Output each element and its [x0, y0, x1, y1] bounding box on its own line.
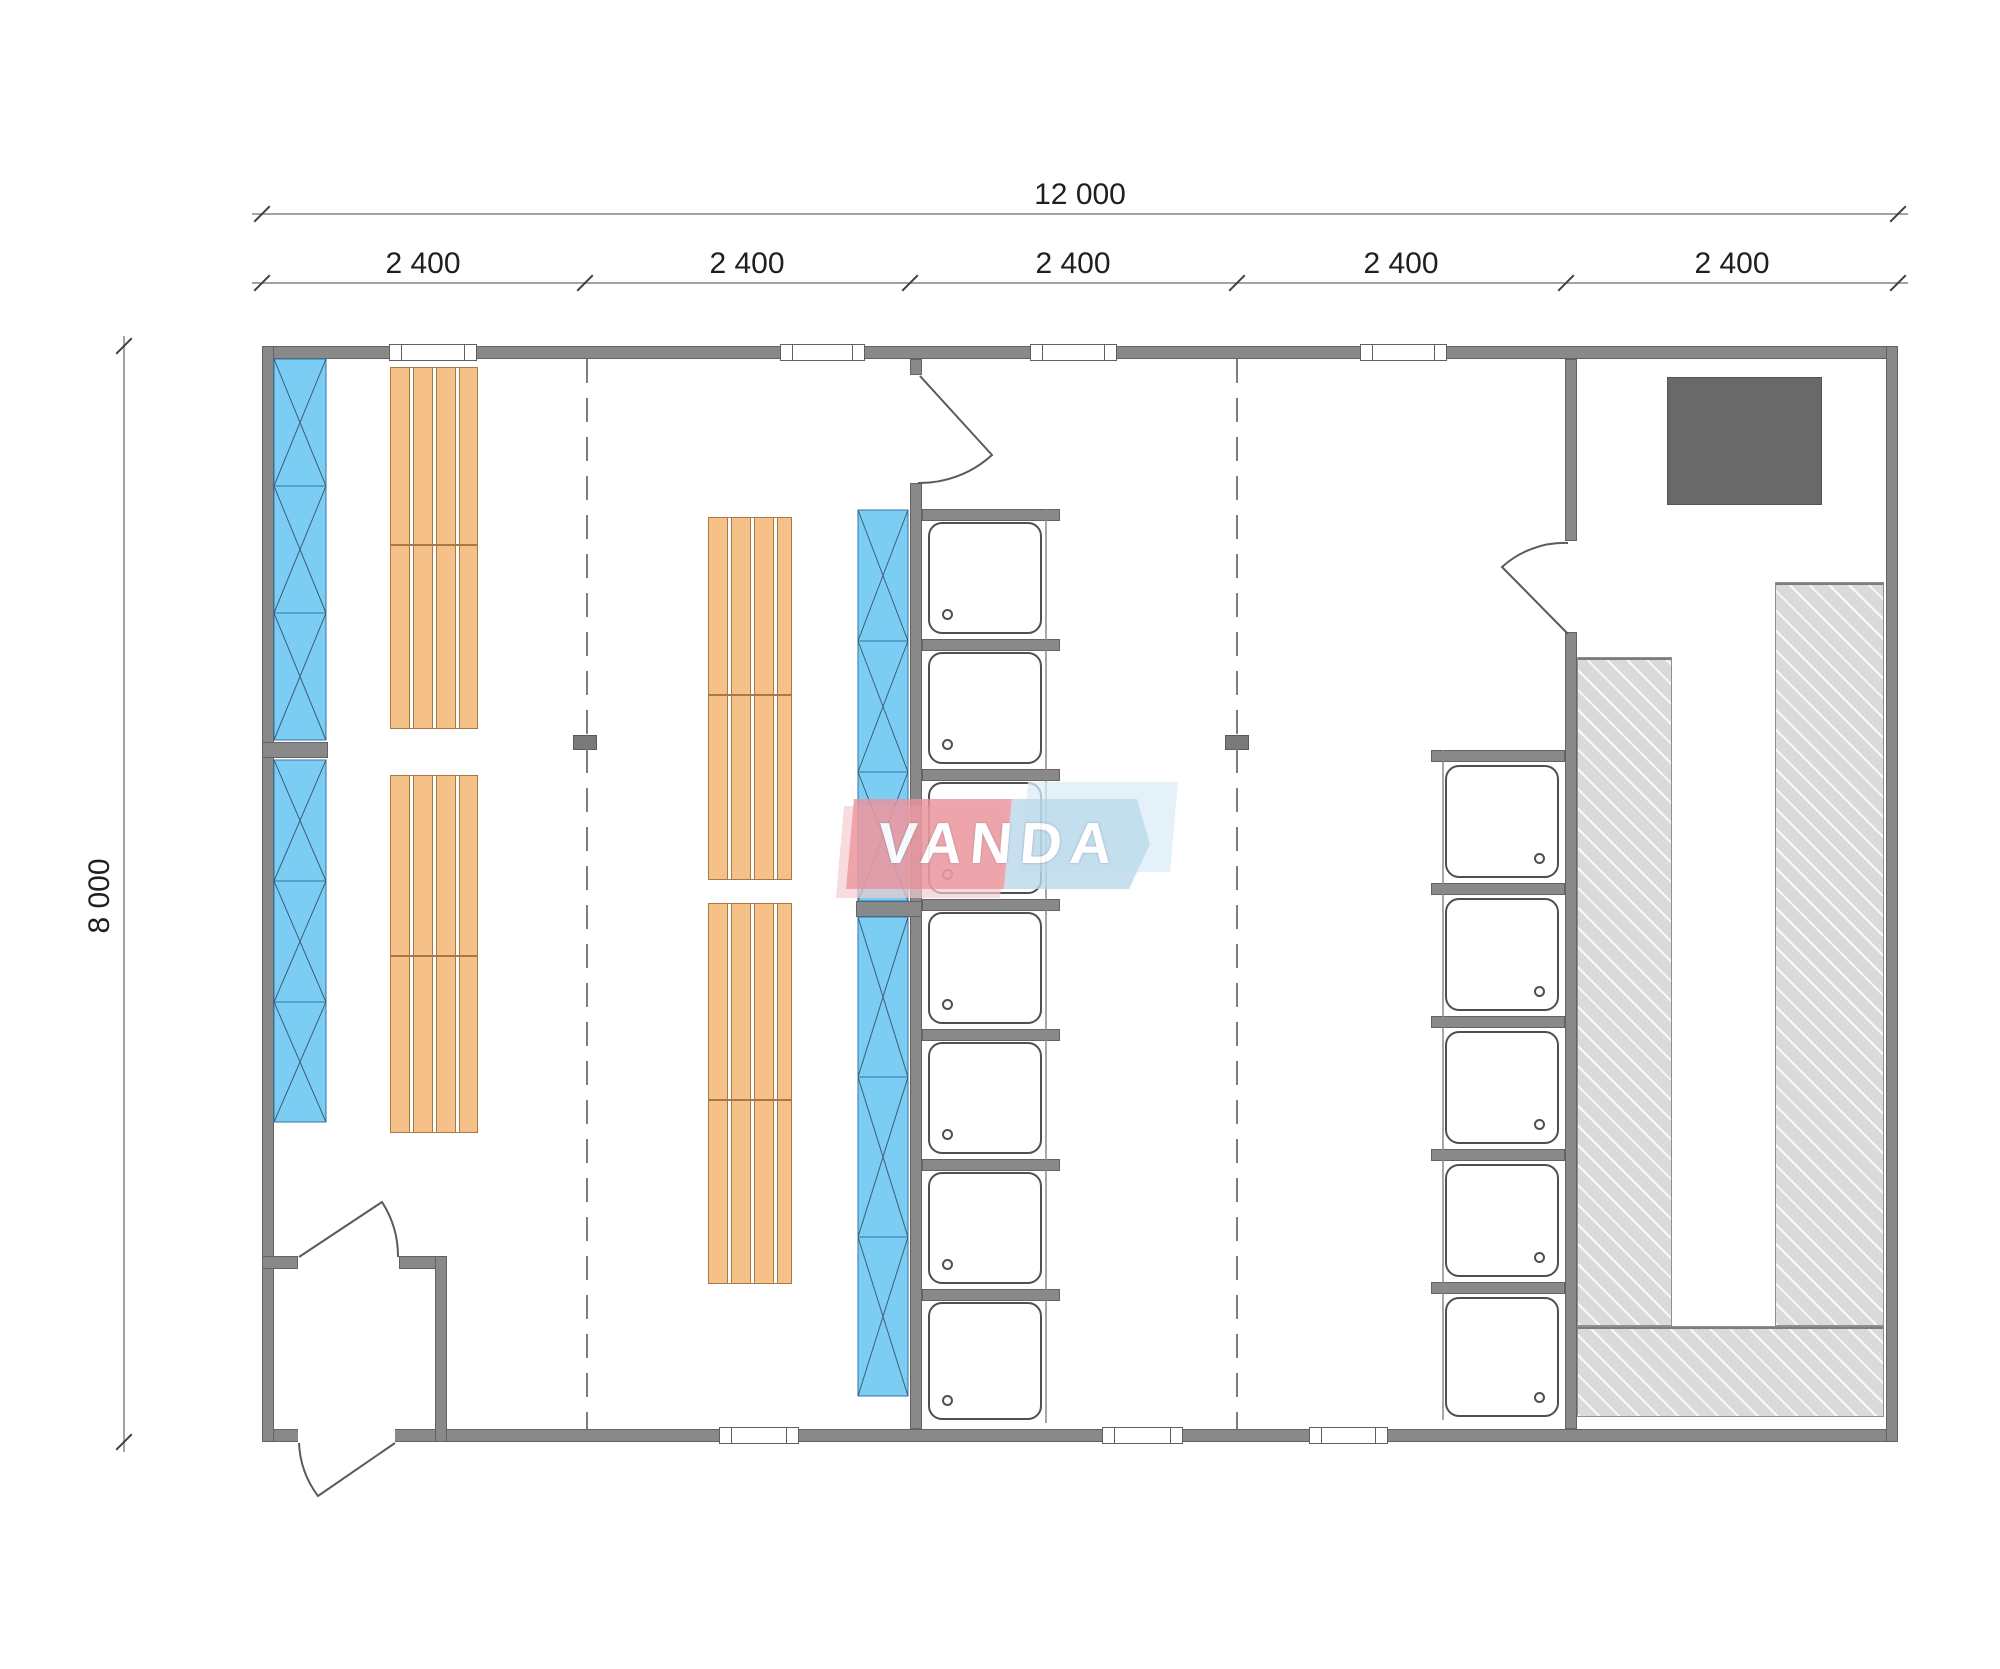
structural-post	[1225, 735, 1249, 750]
shower-tray	[1445, 1164, 1559, 1277]
shower-partition	[1431, 1282, 1565, 1294]
shower-tray	[1445, 898, 1559, 1011]
vanda-watermark: VANDA	[838, 788, 1178, 900]
structural-post	[573, 735, 597, 750]
window	[1309, 1427, 1388, 1444]
shower-tray	[1445, 1031, 1559, 1144]
window	[719, 1427, 799, 1444]
wall-sauna-upper	[1565, 359, 1577, 541]
window	[1102, 1427, 1183, 1444]
window	[1360, 344, 1447, 361]
shower-partition	[1431, 750, 1565, 762]
shower-partition	[1431, 1149, 1565, 1161]
door-sauna	[1502, 543, 1568, 634]
drain-icon	[942, 1395, 953, 1406]
door-entrance	[299, 1443, 395, 1496]
dim-label-module-3: 2 400	[1013, 247, 1133, 281]
shower-tray	[1445, 765, 1559, 878]
wall-bottom	[262, 1429, 1898, 1442]
dim-label-module-2: 2 400	[687, 247, 807, 281]
dim-label-height: 8 000	[83, 821, 117, 971]
drain-icon	[942, 609, 953, 620]
wall-sauna-lower	[1565, 632, 1577, 1429]
shower-tray	[928, 912, 1042, 1024]
logo-text: VANDA	[833, 788, 1165, 900]
window	[389, 344, 477, 361]
wood-bench	[708, 1100, 792, 1284]
shower-partition	[922, 1029, 1060, 1041]
drain-icon	[942, 999, 953, 1010]
dim-line-modules	[252, 282, 1908, 284]
wall-vestibule-top-left	[262, 1256, 298, 1269]
shower-partition	[1431, 883, 1565, 895]
dim-label-module-5: 2 400	[1672, 247, 1792, 281]
sauna-heater	[1667, 377, 1822, 505]
dim-label-module-1: 2 400	[363, 247, 483, 281]
drain-icon	[1534, 853, 1545, 864]
dim-label-module-4: 2 400	[1341, 247, 1461, 281]
shower-partition	[922, 769, 1060, 781]
wall-left	[262, 346, 274, 1442]
tiled-bench-bottom	[1577, 1326, 1884, 1417]
shower-tray	[928, 1172, 1042, 1284]
shower-partition	[922, 509, 1060, 521]
shower-tray	[928, 522, 1042, 634]
shower-partition	[922, 899, 1060, 911]
wall-vestibule-right	[435, 1256, 447, 1442]
entrance-door-opening	[298, 1429, 395, 1442]
wood-bench	[708, 517, 792, 695]
door-shower-room	[918, 376, 992, 483]
glazed-panel	[274, 760, 326, 1122]
drain-icon	[1534, 1119, 1545, 1130]
drain-icon	[942, 1129, 953, 1140]
wall-right	[1886, 346, 1898, 1442]
wood-bench	[390, 956, 478, 1133]
dim-line-height	[123, 336, 125, 1452]
shower-partition	[922, 1159, 1060, 1171]
wood-bench	[390, 545, 478, 729]
shower-partition	[922, 1289, 1060, 1301]
shower-partition	[1431, 1016, 1565, 1028]
tiled-bench-right	[1775, 582, 1884, 1326]
dim-line-total-width	[252, 213, 1908, 215]
drain-icon	[942, 739, 953, 750]
drain-icon	[1534, 986, 1545, 997]
window	[1030, 344, 1117, 361]
window	[780, 344, 865, 361]
drain-icon	[942, 1259, 953, 1270]
wood-bench	[390, 775, 478, 956]
dim-label-total-width: 12 000	[1005, 178, 1155, 212]
shower-tray	[928, 1302, 1042, 1420]
wall-shower-block	[910, 483, 922, 1429]
wall-shower-block-stub	[910, 359, 922, 375]
floor-plan-canvas: 12 000 2 400 2 400 2 400 2 400 2 400 8 0…	[0, 0, 2000, 1669]
shower-tray	[928, 652, 1042, 764]
glazed-panel	[858, 917, 908, 1396]
shower-partition	[922, 639, 1060, 651]
shower-tray	[1445, 1297, 1559, 1417]
wood-bench	[708, 903, 792, 1100]
tiled-bench-left	[1577, 657, 1672, 1326]
wall-stub-glazing-mid	[856, 901, 922, 917]
drain-icon	[1534, 1392, 1545, 1403]
shower-tray	[928, 1042, 1042, 1154]
wall-stub-glazing-left	[262, 742, 328, 758]
door-vestibule-inner	[299, 1202, 398, 1257]
glazed-panel	[274, 359, 326, 740]
drain-icon	[1534, 1252, 1545, 1263]
wood-bench	[708, 695, 792, 880]
wood-bench	[390, 367, 478, 545]
